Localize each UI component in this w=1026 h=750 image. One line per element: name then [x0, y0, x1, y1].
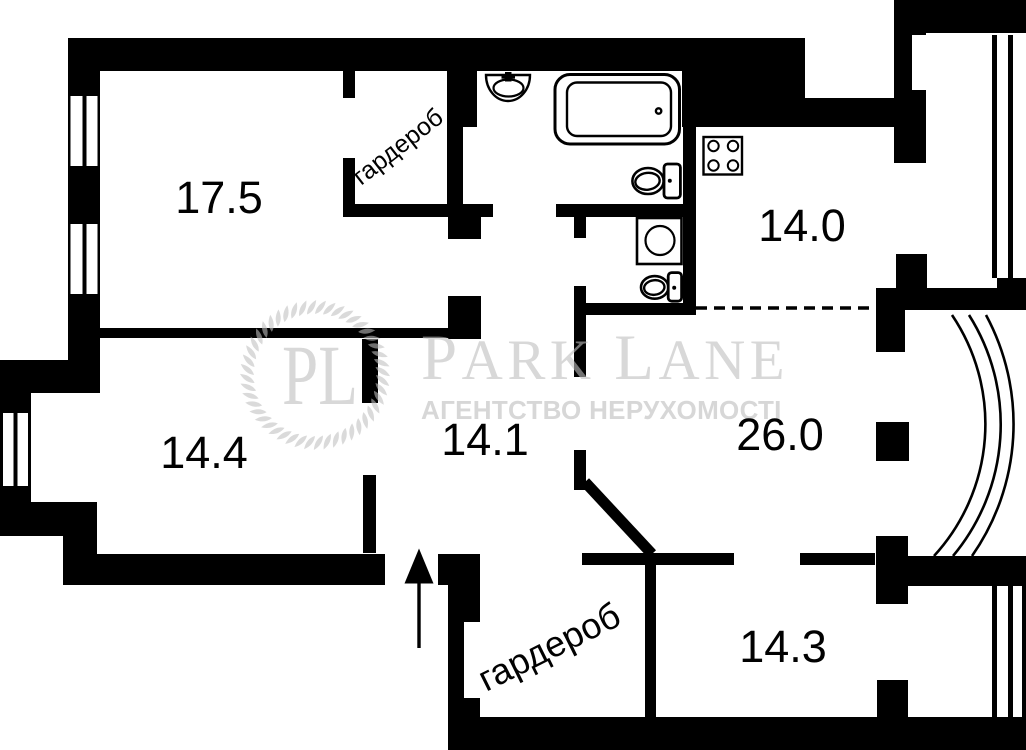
- svg-text:14.3: 14.3: [739, 621, 827, 672]
- svg-text:PARK LANE: PARK LANE: [421, 322, 789, 394]
- svg-text:14.1: 14.1: [441, 414, 529, 465]
- svg-text:PL: PL: [282, 327, 358, 423]
- svg-text:26.0: 26.0: [736, 409, 824, 460]
- svg-text:17.5: 17.5: [175, 172, 263, 223]
- svg-text:14.0: 14.0: [758, 200, 846, 251]
- svg-text:14.4: 14.4: [160, 427, 248, 478]
